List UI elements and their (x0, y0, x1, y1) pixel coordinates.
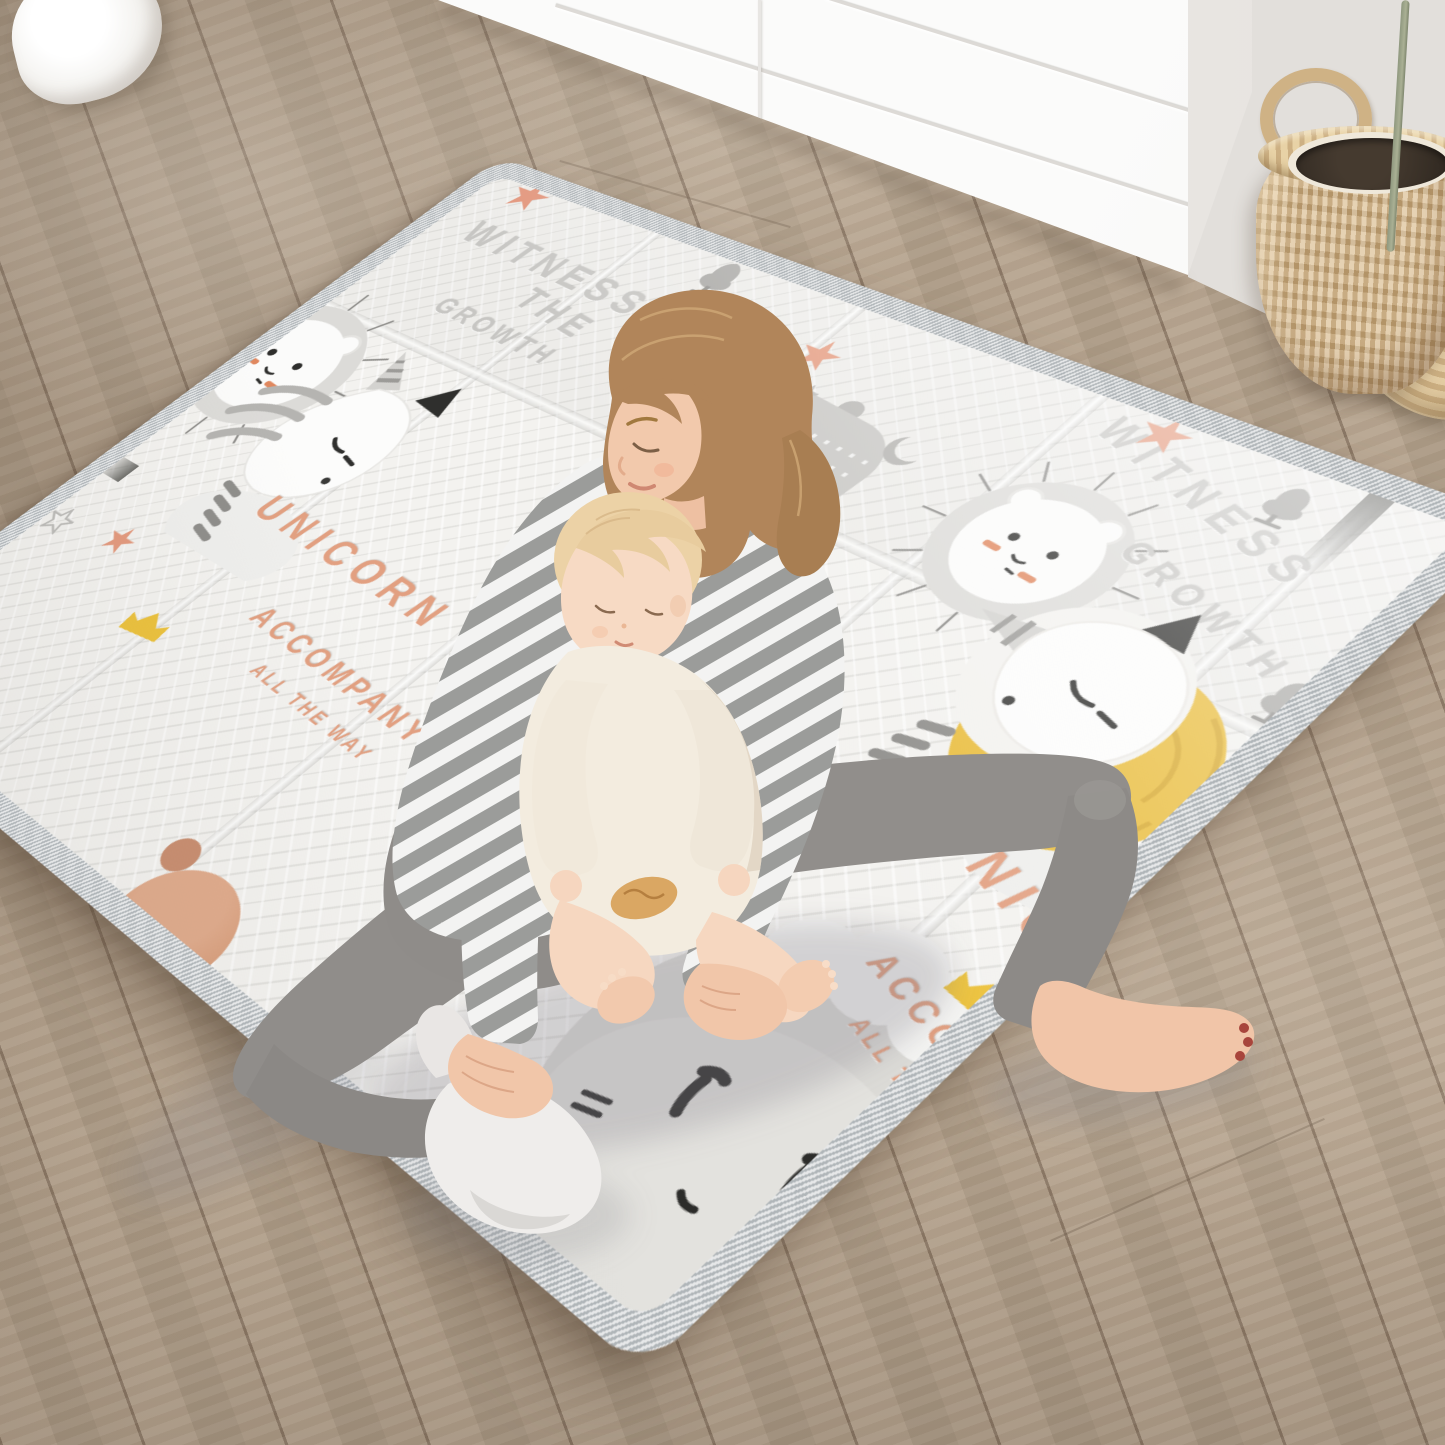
product-photo: WITNESS THE GROWTH UNICORN ACCOMPANY ALL… (0, 0, 1445, 1445)
mother-and-baby (0, 0, 1445, 1445)
